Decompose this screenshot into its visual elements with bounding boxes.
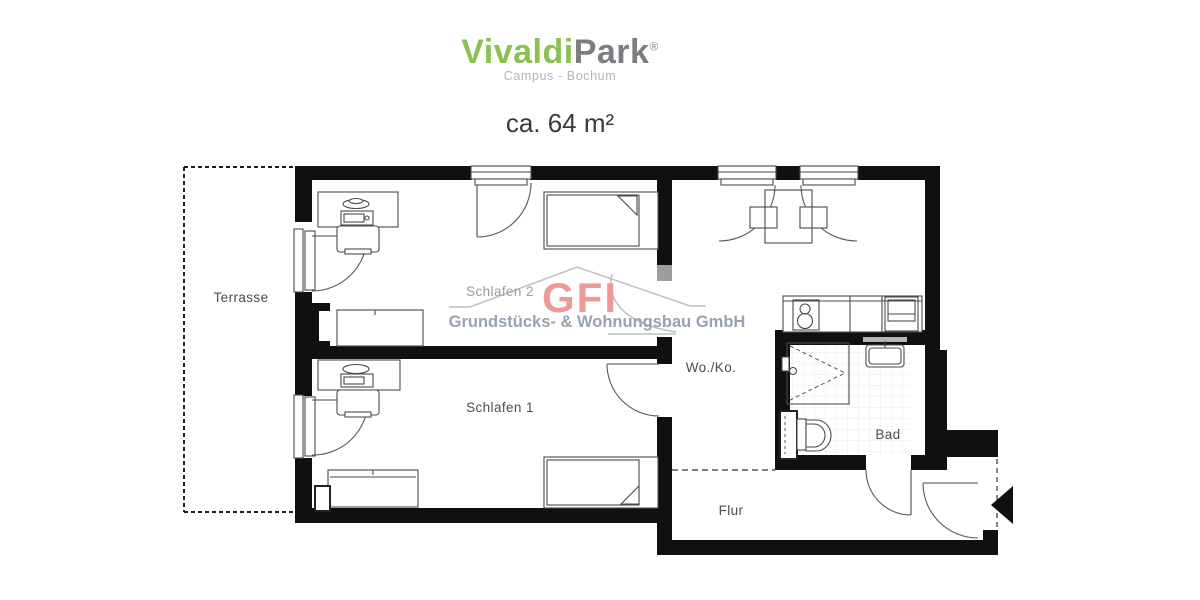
label-bedroom2: Schlafen 2 (466, 284, 534, 299)
gray-wall-segment (657, 265, 672, 281)
floor-plan-page: VivaldiPark® Campus - Bochum ca. 64 m² (0, 0, 1200, 600)
floor-plan-canvas: GFI Grundstücks- & Wohnungsbau GmbH Terr… (0, 0, 1200, 600)
label-living-kitchen: Wo./Ko. (686, 360, 737, 375)
entrance-arrow (991, 486, 1013, 524)
label-hall: Flur (719, 503, 744, 518)
watermark: GFI Grundstücks- & Wohnungsbau GmbH (449, 267, 746, 334)
watermark-company: Grundstücks- & Wohnungsbau GmbH (449, 313, 746, 331)
toilet (797, 419, 806, 450)
terrace-outline (184, 167, 310, 512)
label-terrace: Terrasse (214, 290, 269, 305)
label-bedroom1: Schlafen 1 (466, 400, 534, 415)
label-bath: Bad (875, 427, 900, 442)
furniture-bedroom1 (315, 360, 658, 511)
furniture-living-kitchen (750, 190, 922, 332)
bath-duct (780, 411, 797, 459)
